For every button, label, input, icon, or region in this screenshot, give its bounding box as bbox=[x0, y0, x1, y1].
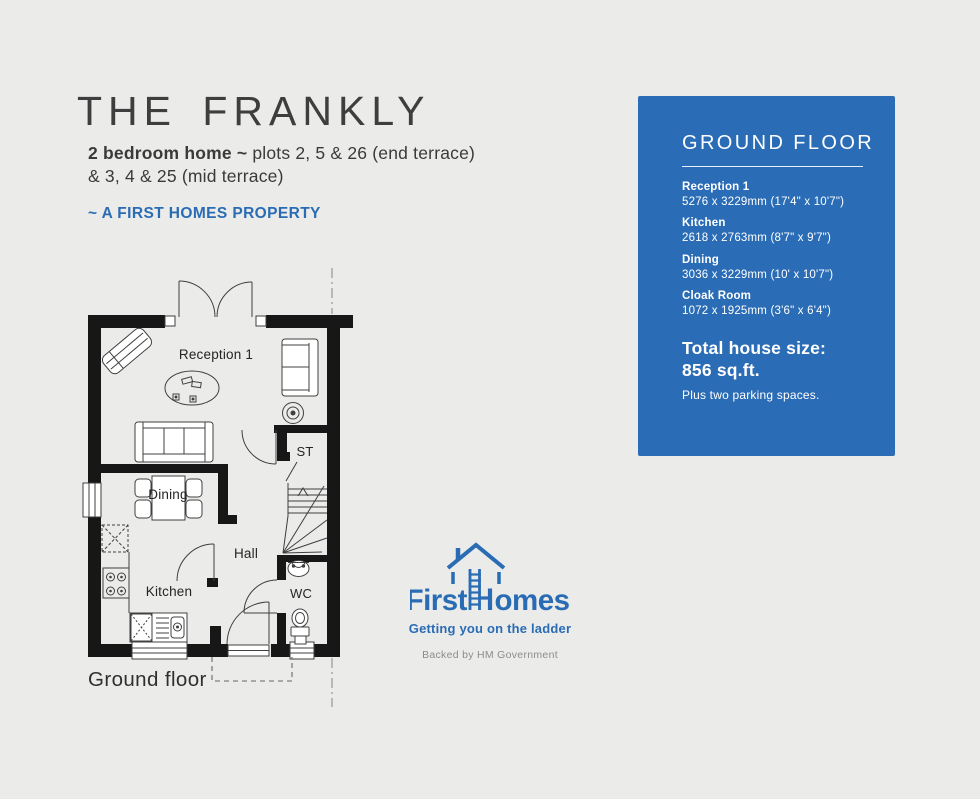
side-table bbox=[283, 403, 304, 424]
wc-fittings bbox=[288, 561, 309, 645]
logo-word-first: First bbox=[410, 584, 468, 615]
total-house-size: Total house size: 856 sq.ft. Plus two pa… bbox=[682, 337, 875, 402]
room-row-kitchen: Kitchen 2618 x 2763mm (8'7" x 9'7") bbox=[682, 216, 875, 245]
plot-list-line2: & 3, 4 & 25 (mid terrace) bbox=[88, 166, 284, 186]
staircase bbox=[283, 483, 327, 553]
sofa bbox=[135, 422, 213, 462]
ground-floor-panel: GROUND FLOOR Reception 1 5276 x 3229mm (… bbox=[638, 96, 895, 456]
floor-plan: Reception 1 ST Dining Hall Kitchen WC Gr… bbox=[70, 250, 370, 710]
panel-divider bbox=[682, 166, 863, 167]
room-name: Dining bbox=[682, 253, 875, 268]
armchair bbox=[282, 339, 318, 396]
first-homes-logo: First omes Getting you on the ladder Bac… bbox=[402, 541, 578, 661]
room-name: Cloak Room bbox=[682, 289, 875, 304]
room-label-st: ST bbox=[296, 444, 313, 459]
rug bbox=[165, 371, 219, 405]
h-letter-strokes bbox=[480, 589, 491, 611]
panel-heading: GROUND FLOOR bbox=[682, 132, 875, 155]
chaise-longue bbox=[100, 326, 154, 376]
logo-backed-by: Backed by HM Government bbox=[402, 649, 578, 661]
room-row-reception: Reception 1 5276 x 3229mm (17'4" x 10'7"… bbox=[682, 180, 875, 209]
page-title: THE FRANKLY bbox=[77, 88, 430, 135]
room-row-dining: Dining 3036 x 3229mm (10' x 10'7") bbox=[682, 253, 875, 282]
bedroom-count: 2 bedroom home ~ bbox=[88, 143, 247, 163]
plot-list-line1: plots 2, 5 & 26 (end terrace) bbox=[247, 143, 475, 163]
ladder-icon bbox=[469, 569, 481, 610]
room-dimension-list: Reception 1 5276 x 3229mm (17'4" x 10'7"… bbox=[682, 180, 875, 319]
room-label-dining: Dining bbox=[148, 487, 187, 502]
total-value: 856 sq.ft. bbox=[682, 359, 875, 381]
room-label-hall: Hall bbox=[234, 546, 258, 561]
room-dims: 3036 x 3229mm (10' x 10'7") bbox=[682, 268, 875, 283]
parking-note: Plus two parking spaces. bbox=[682, 388, 875, 402]
porch-outline bbox=[212, 657, 292, 681]
room-dims: 5276 x 3229mm (17'4" x 10'7") bbox=[682, 195, 875, 210]
room-name: Reception 1 bbox=[682, 180, 875, 195]
room-label-reception: Reception 1 bbox=[179, 347, 253, 362]
room-dims: 1072 x 1925mm (3'6" x 6'4") bbox=[682, 304, 875, 319]
first-homes-logo-graphic: First omes bbox=[410, 541, 570, 615]
brochure-page: THE FRANKLY 2 bedroom home ~ plots 2, 5 … bbox=[0, 0, 980, 799]
house-icon bbox=[448, 545, 504, 584]
room-name: Kitchen bbox=[682, 216, 875, 231]
plot-description: 2 bedroom home ~ plots 2, 5 & 26 (end te… bbox=[88, 142, 475, 188]
logo-word-homes: omes bbox=[495, 584, 570, 615]
room-dims: 2618 x 2763mm (8'7" x 9'7") bbox=[682, 231, 875, 246]
plan-caption: Ground floor bbox=[88, 668, 207, 691]
total-label: Total house size: bbox=[682, 337, 875, 359]
room-label-kitchen: Kitchen bbox=[146, 584, 192, 599]
first-homes-property-tag: ~ A FIRST HOMES PROPERTY bbox=[88, 205, 321, 223]
room-label-wc: WC bbox=[290, 586, 312, 601]
logo-tagline: Getting you on the ladder bbox=[402, 621, 578, 636]
room-row-cloakroom: Cloak Room 1072 x 1925mm (3'6" x 6'4") bbox=[682, 289, 875, 318]
